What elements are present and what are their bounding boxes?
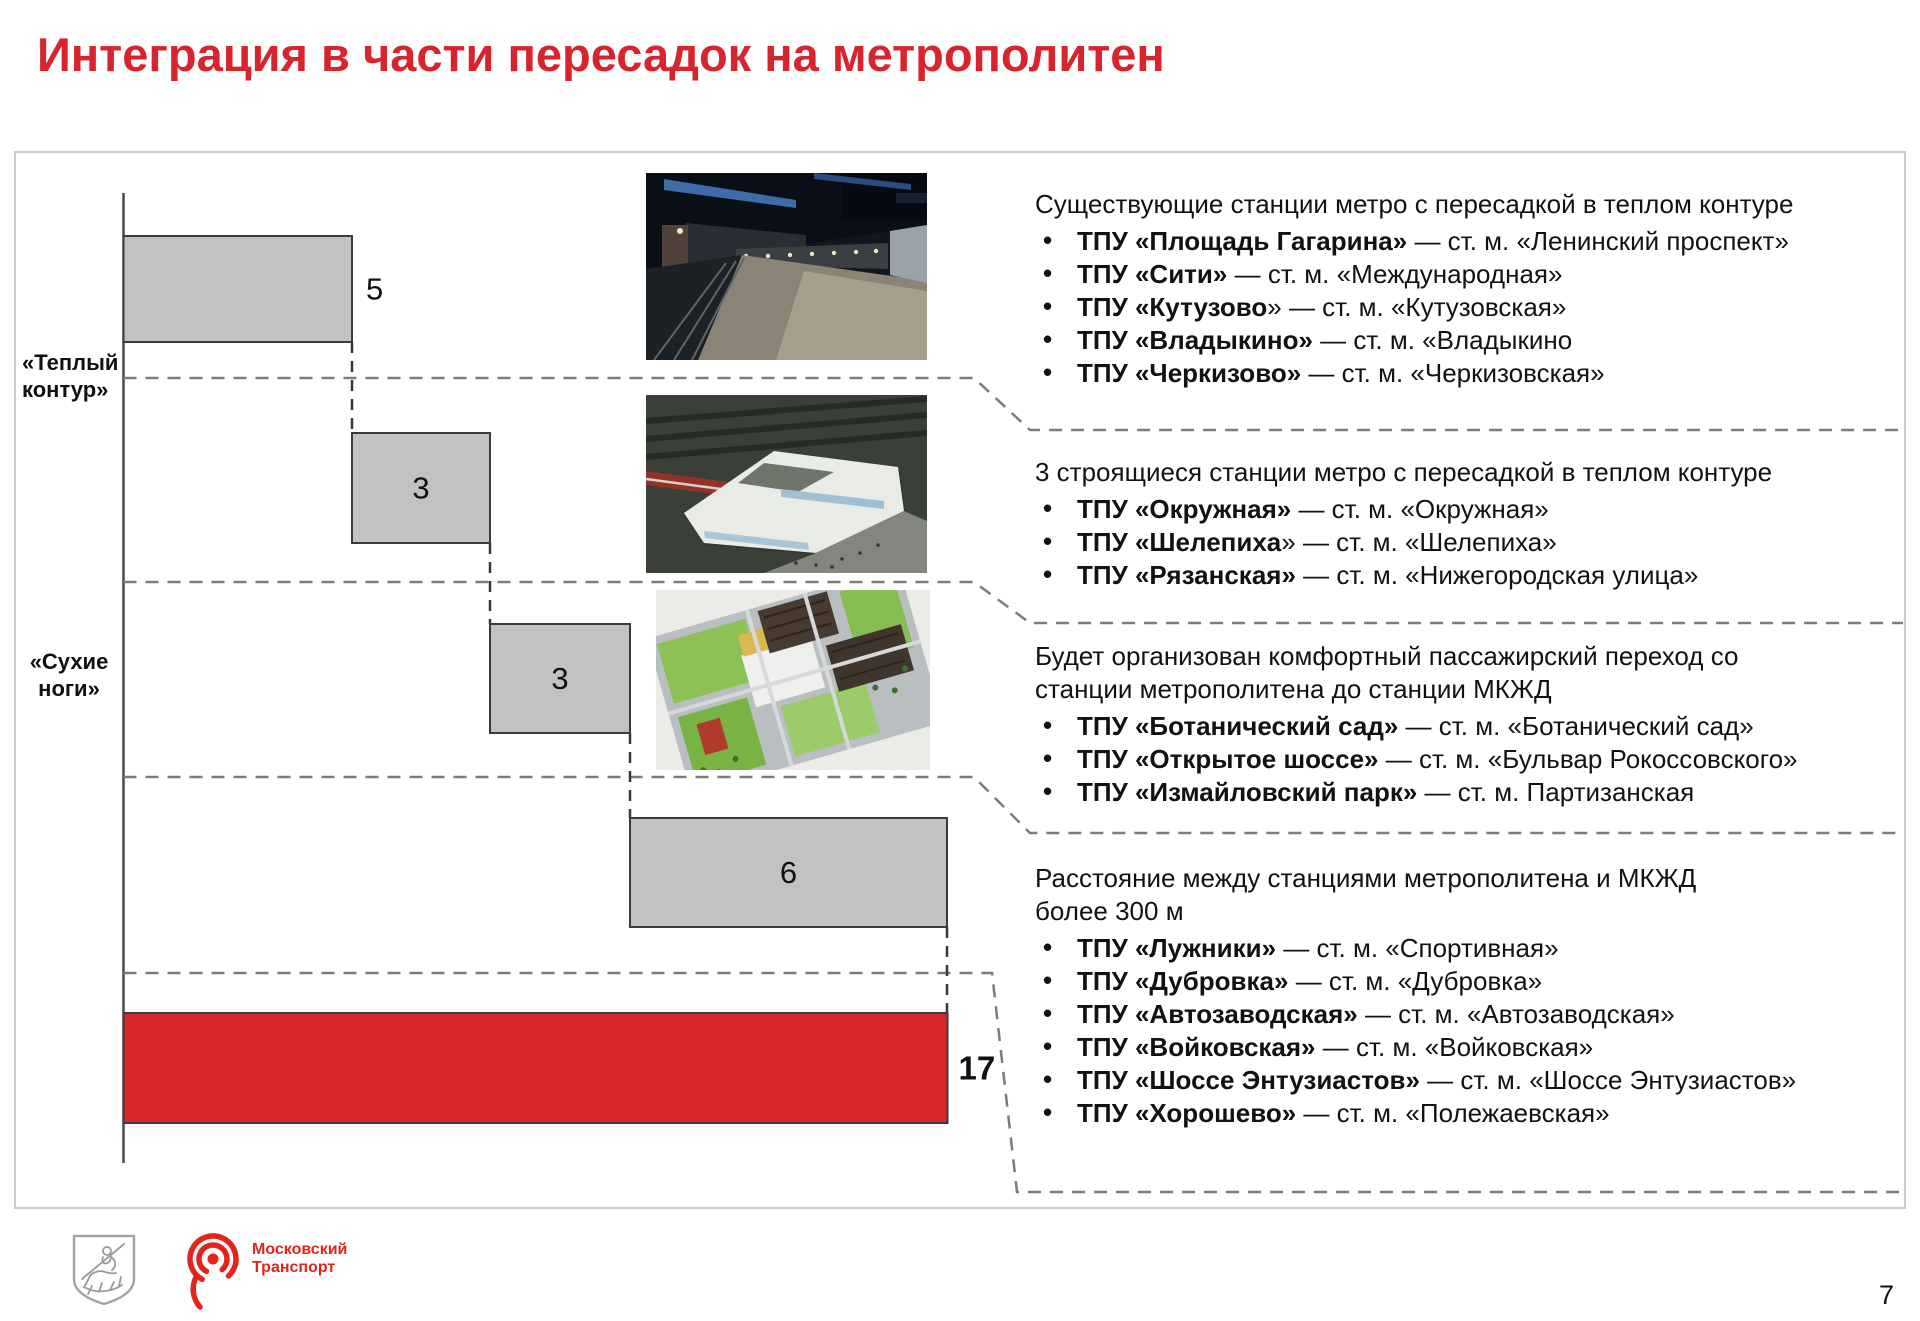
info-block-heading: Существующие станции метро с пересадкой … <box>1035 188 1903 221</box>
info-block-1: Существующие станции метро с пересадкой … <box>1035 188 1903 390</box>
tpu-list-item: ТПУ «Владыкино» — ст. м. «Владыкино <box>1035 324 1903 357</box>
tpu-list: ТПУ «Площадь Гагарина» — ст. м. «Ленинск… <box>1035 225 1903 390</box>
tpu-list-item: ТПУ «Сити» — ст. м. «Международная» <box>1035 258 1903 291</box>
tpu-list-item: ТПУ «Шелепиха» — ст. м. «Шелепиха» <box>1035 526 1903 559</box>
chart-annotation-warm-contour: «Теплый контур» <box>22 349 118 403</box>
slide: Интеграция в части пересадок на метропол… <box>0 0 1920 1321</box>
tpu-list-item: ТПУ «Шоссе Энтузиастов» — ст. м. «Шоссе … <box>1035 1064 1903 1097</box>
tpu-list-item: ТПУ «Измайловский парк» — ст. м. Партиза… <box>1035 776 1903 809</box>
info-block-heading: Расстояние между станциями метрополитена… <box>1035 862 1903 928</box>
photo-aerial-masterplan <box>656 590 930 770</box>
info-block-heading: 3 строящиеся станции метро с пересадкой … <box>1035 456 1903 489</box>
moscow-transport-logo <box>183 1230 241 1310</box>
page-number: 7 <box>1879 1280 1894 1311</box>
moscow-transport-logo-text: Московский Транспорт <box>252 1241 347 1276</box>
photo-metro-platform-night <box>646 173 927 360</box>
info-block-heading: Будет организован комфортный пассажирски… <box>1035 640 1903 706</box>
tpu-list-item: ТПУ «Кутузово» — ст. м. «Кутузовская» <box>1035 291 1903 324</box>
info-block-4: Расстояние между станциями метрополитена… <box>1035 862 1903 1130</box>
tpu-list-item: ТПУ «Рязанская» — ст. м. «Нижегородская … <box>1035 559 1903 592</box>
tpu-list-item: ТПУ «Лужники» — ст. м. «Спортивная» <box>1035 932 1903 965</box>
tpu-list-item: ТПУ «Войковская» — ст. м. «Войковская» <box>1035 1031 1903 1064</box>
photo-tpu-building-render <box>646 395 927 573</box>
tpu-list: ТПУ «Лужники» — ст. м. «Спортивная»ТПУ «… <box>1035 932 1903 1130</box>
tpu-list-item: ТПУ «Автозаводская» — ст. м. «Автозаводс… <box>1035 998 1903 1031</box>
tpu-list-item: ТПУ «Дубровка» — ст. м. «Дубровка» <box>1035 965 1903 998</box>
info-block-3: Будет организован комфортный пассажирски… <box>1035 640 1903 809</box>
info-block-2: 3 строящиеся станции метро с пересадкой … <box>1035 456 1903 592</box>
tpu-list-item: ТПУ «Ботанический сад» — ст. м. «Ботанич… <box>1035 710 1903 743</box>
tpu-list-item: ТПУ «Черкизово» — ст. м. «Черкизовская» <box>1035 357 1903 390</box>
tpu-list-item: ТПУ «Открытое шоссе» — ст. м. «Бульвар Р… <box>1035 743 1903 776</box>
tpu-list-item: ТПУ «Окружная» — ст. м. «Окружная» <box>1035 493 1903 526</box>
tpu-list: ТПУ «Ботанический сад» — ст. м. «Ботанич… <box>1035 710 1903 809</box>
tpu-list-item: ТПУ «Площадь Гагарина» — ст. м. «Ленинск… <box>1035 225 1903 258</box>
tpu-list: ТПУ «Окружная» — ст. м. «Окружная»ТПУ «Ш… <box>1035 493 1903 592</box>
page-title: Интеграция в части пересадок на метропол… <box>37 27 1165 82</box>
tpu-list-item: ТПУ «Хорошево» — ст. м. «Полежаевская» <box>1035 1097 1903 1130</box>
chart-annotation-dry-feet: «Сухие ноги» <box>28 648 110 702</box>
moscow-coat-of-arms-logo <box>70 1231 138 1308</box>
